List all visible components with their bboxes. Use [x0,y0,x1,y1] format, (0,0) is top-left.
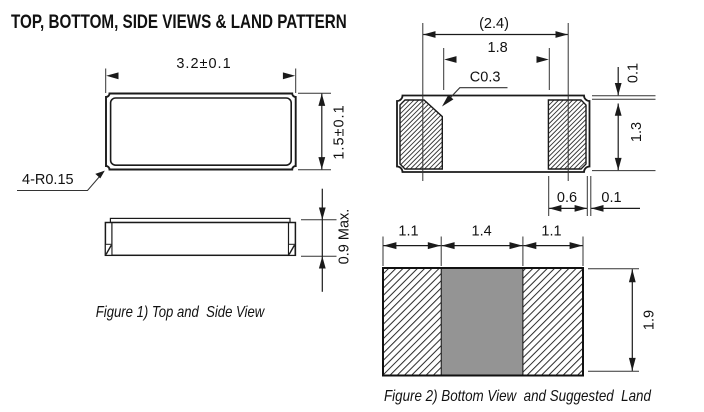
svg-text:0.1: 0.1 [601,190,621,206]
svg-text:1.1: 1.1 [398,223,418,239]
svg-text:1.1: 1.1 [541,223,561,239]
svg-text:1.8: 1.8 [488,40,508,56]
svg-text:0.1: 0.1 [625,63,641,83]
svg-text:1.9: 1.9 [641,310,657,330]
svg-text:0.6: 0.6 [557,190,577,206]
svg-text:1.5±0.1: 1.5±0.1 [332,104,348,159]
svg-text:0.9 Max.: 0.9 Max. [337,209,353,265]
svg-text:4-R0.15: 4-R0.15 [22,172,74,188]
svg-text:Figure 1) Top and Side View: Figure 1) Top and Side View [96,304,266,321]
svg-text:TOP, BOTTOM, SIDE VIEWS & LAND: TOP, BOTTOM, SIDE VIEWS & LAND PATTERN [11,11,347,33]
svg-text:3.2±0.1: 3.2±0.1 [176,56,231,72]
svg-text:C0.3: C0.3 [470,70,501,86]
svg-text:1.4: 1.4 [472,223,492,239]
svg-text:Figure 2) Bottom View and Sug: Figure 2) Bottom View and Suggested Land [384,388,652,405]
svg-text:1.3: 1.3 [629,122,645,142]
svg-text:(2.4): (2.4) [479,16,509,32]
